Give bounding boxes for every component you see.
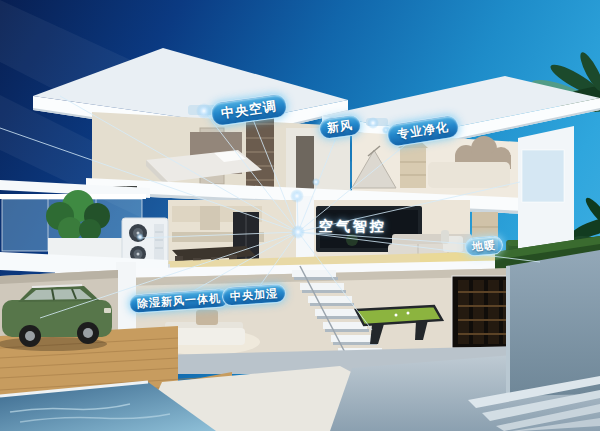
- hall-mirror-door: [296, 136, 314, 190]
- network-hub: [291, 225, 305, 239]
- scene-illustration: [0, 0, 600, 431]
- wardrobe-shelf: [246, 110, 274, 190]
- callout-air-smart-control: 空气智控: [319, 218, 387, 236]
- smart-home-cutaway-scene: 中央空调 新风 专业净化 空气智控 地暖 除湿新风一体机 中央加湿: [0, 0, 600, 431]
- concrete-wall-right: [506, 250, 600, 396]
- armchair: [196, 310, 218, 325]
- range-hood: [200, 206, 220, 230]
- headlight: [104, 308, 111, 313]
